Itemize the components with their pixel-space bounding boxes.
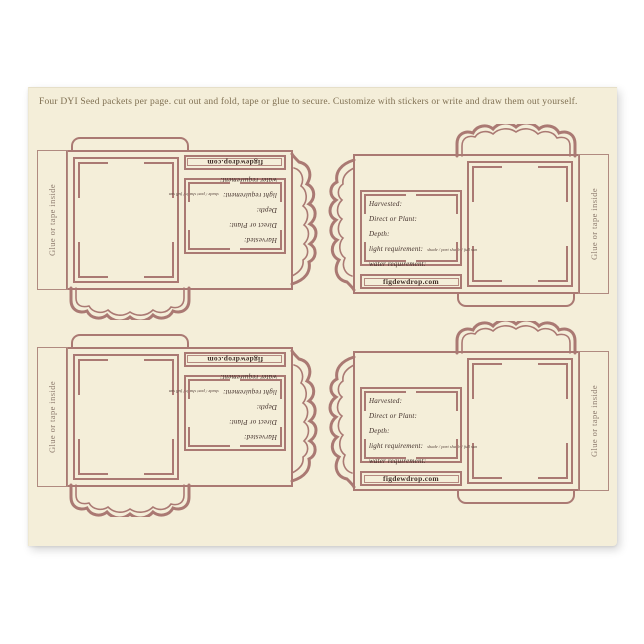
field-row: Depth: (190, 402, 277, 413)
corner-bracket (78, 439, 108, 475)
front-panel-frame (73, 157, 179, 283)
front-panel-frame (467, 161, 573, 287)
field-label-depth: Depth: (256, 206, 277, 214)
website-banner: figdewdrop.com (360, 471, 462, 486)
seed-info-frame: Harvested: Direct or Plant: Depth: light… (184, 375, 286, 451)
corner-bracket (472, 363, 502, 399)
corner-bracket (240, 427, 282, 447)
field-label-direct-or-plant: Direct or Plant: (369, 412, 417, 420)
field-label-direct-or-plant: Direct or Plant: (229, 221, 277, 229)
corner-bracket (78, 242, 108, 278)
corner-bracket (538, 443, 568, 479)
seed-packet-template: Glue or tape inside Harvested: Direct or… (327, 124, 612, 308)
website-banner-inner: figdewdrop.com (364, 475, 459, 483)
glue-tab: Glue or tape inside (37, 347, 68, 487)
corner-bracket (188, 182, 230, 202)
corner-bracket (364, 391, 406, 411)
corner-bracket (240, 379, 282, 399)
crown-flap (457, 124, 575, 156)
crown-flap (71, 288, 189, 320)
corner-bracket (416, 391, 458, 411)
front-panel-frame (467, 358, 573, 484)
crown-flap (457, 321, 575, 353)
corner-bracket (416, 194, 458, 214)
packet-slot-bottom-right: Glue or tape inside Harvested: Direct or… (327, 321, 612, 505)
packet-slot-top-right: Glue or tape inside Harvested: Direct or… (327, 124, 612, 308)
crown-flap-inner-line (462, 129, 570, 156)
website-label: figdewdrop.com (383, 474, 439, 483)
glue-tab: Glue or tape inside (37, 150, 68, 290)
wavy-closure-edge (292, 351, 316, 481)
fold-tab (457, 489, 575, 504)
fold-tab (71, 334, 189, 349)
website-banner: figdewdrop.com (184, 352, 286, 367)
corner-bracket (188, 379, 230, 399)
seed-info-frame: Harvested: Direct or Plant: Depth: light… (360, 190, 462, 266)
corner-bracket (364, 242, 406, 262)
corner-bracket (144, 242, 174, 278)
corner-bracket (188, 427, 230, 447)
website-banner: figdewdrop.com (360, 274, 462, 289)
website-label: figdewdrop.com (207, 355, 263, 364)
corner-bracket (240, 230, 282, 250)
field-row: Direct or Plant: (369, 410, 456, 421)
field-row: Depth: (369, 228, 456, 239)
crown-flap-inner-line (76, 485, 184, 512)
corner-bracket (188, 230, 230, 250)
seed-info-frame: Harvested: Direct or Plant: Depth: light… (360, 387, 462, 463)
field-label-direct-or-plant: Direct or Plant: (369, 215, 417, 223)
corner-bracket (78, 359, 108, 395)
corner-bracket (364, 439, 406, 459)
corner-bracket (240, 182, 282, 202)
glue-tab-label: Glue or tape inside (48, 184, 58, 256)
seed-packet-template: Glue or tape inside Harvested: Direct or… (327, 321, 612, 505)
seed-packet-template: Glue or tape inside Harvested: Direct or… (34, 333, 319, 517)
crown-flap (71, 485, 189, 517)
notepad-page: Four DYI Seed packets per page. cut out … (28, 87, 617, 546)
glue-tab: Glue or tape inside (578, 154, 609, 294)
wavy-closure-edge (330, 160, 354, 290)
website-label: figdewdrop.com (207, 158, 263, 167)
corner-bracket (144, 439, 174, 475)
instructions-text: Four DYI Seed packets per page. cut out … (39, 97, 578, 107)
glue-tab: Glue or tape inside (578, 351, 609, 491)
crown-flap-inner-line (76, 288, 184, 315)
field-row: Depth: (369, 425, 456, 436)
front-panel-frame (73, 354, 179, 480)
glue-tab-label: Glue or tape inside (589, 385, 599, 457)
website-banner: figdewdrop.com (184, 155, 286, 170)
corner-bracket (78, 162, 108, 198)
website-banner-inner: figdewdrop.com (364, 278, 459, 286)
wavy-closure-edge (330, 357, 354, 487)
wavy-closure-edge (292, 154, 316, 284)
packet-slot-bottom-left: Glue or tape inside Harvested: Direct or… (34, 333, 319, 517)
glue-tab-label: Glue or tape inside (48, 381, 58, 453)
field-row: Direct or Plant: (369, 213, 456, 224)
corner-bracket (538, 363, 568, 399)
field-label-depth: Depth: (369, 427, 390, 435)
corner-bracket (416, 242, 458, 262)
field-label-depth: Depth: (256, 403, 277, 411)
seed-info-frame: Harvested: Direct or Plant: Depth: light… (184, 178, 286, 254)
website-banner-inner: figdewdrop.com (188, 159, 283, 167)
seed-packet-template: Glue or tape inside Harvested: Direct or… (34, 136, 319, 320)
field-label-depth: Depth: (369, 230, 390, 238)
website-banner-inner: figdewdrop.com (188, 356, 283, 364)
corner-bracket (538, 246, 568, 282)
product-image: Four DYI Seed packets per page. cut out … (0, 0, 644, 644)
corner-bracket (364, 194, 406, 214)
glue-tab-label: Glue or tape inside (589, 188, 599, 260)
fold-tab (457, 292, 575, 307)
field-row: Depth: (190, 205, 277, 216)
fold-tab (71, 137, 189, 152)
corner-bracket (538, 166, 568, 202)
corner-bracket (416, 439, 458, 459)
field-label-direct-or-plant: Direct or Plant: (229, 418, 277, 426)
website-label: figdewdrop.com (383, 277, 439, 286)
crown-flap-inner-line (462, 326, 570, 353)
corner-bracket (472, 166, 502, 202)
packet-slot-top-left: Glue or tape inside Harvested: Direct or… (34, 136, 319, 320)
